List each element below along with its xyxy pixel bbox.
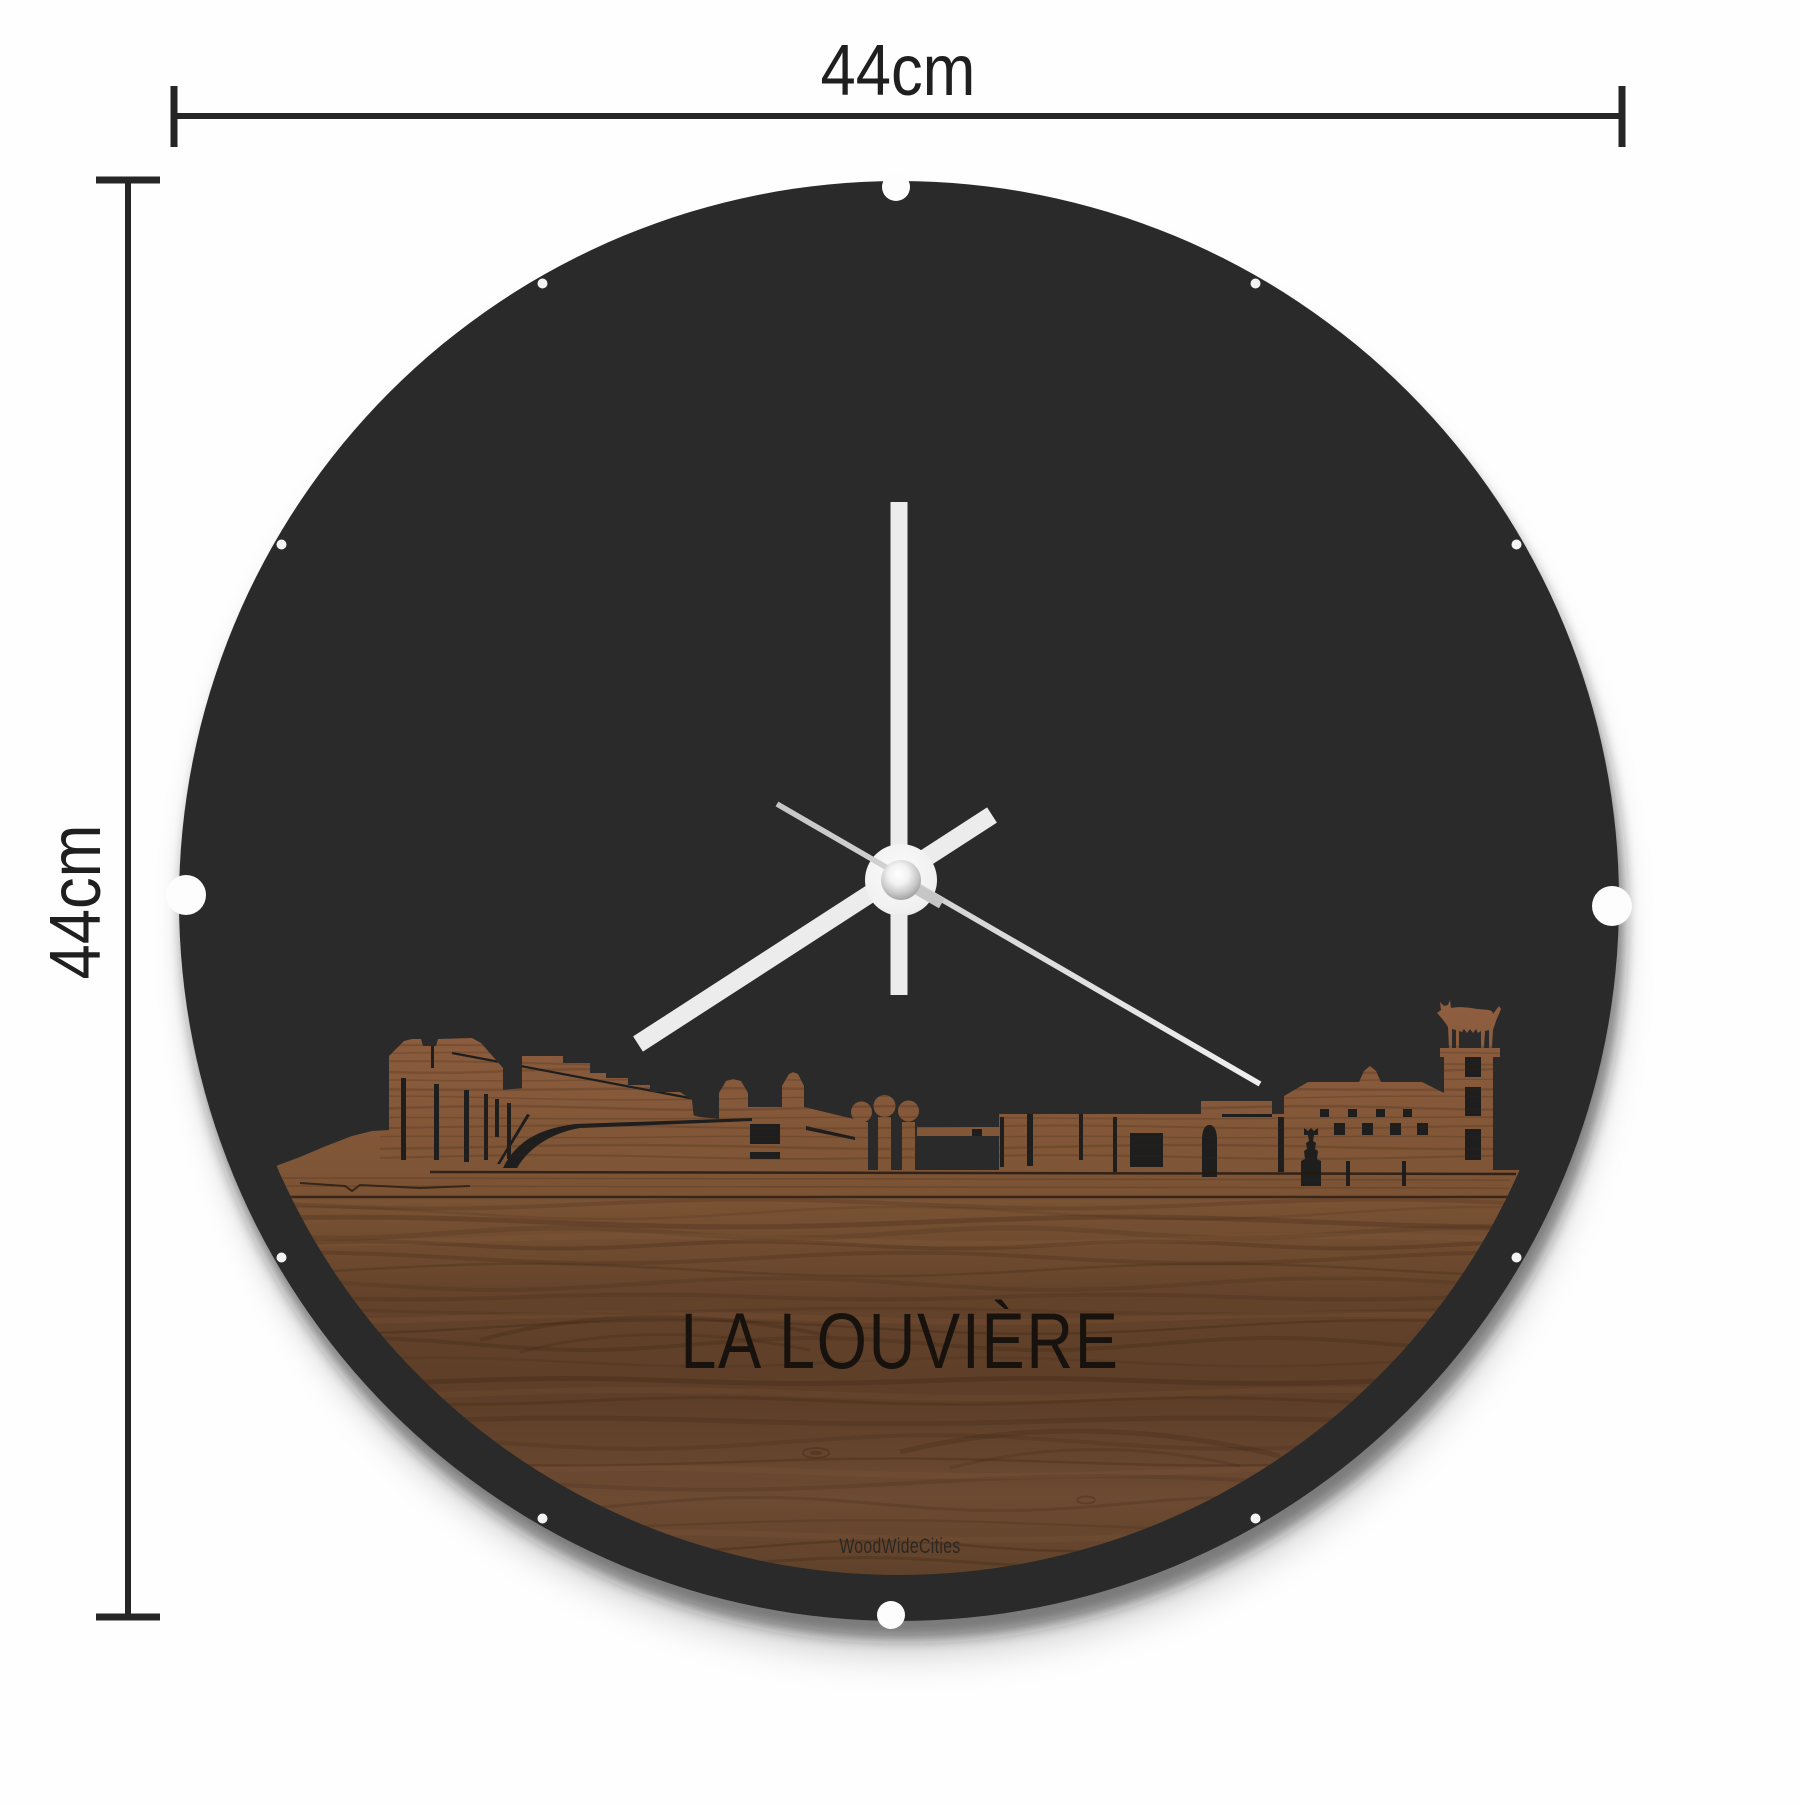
svg-text:44cm: 44cm: [36, 825, 116, 980]
svg-text:44cm: 44cm: [821, 31, 976, 111]
svg-text:LA LOUVIÈRE: LA LOUVIÈRE: [680, 1298, 1119, 1385]
svg-text:WoodWideCities: WoodWideCities: [839, 1534, 960, 1558]
